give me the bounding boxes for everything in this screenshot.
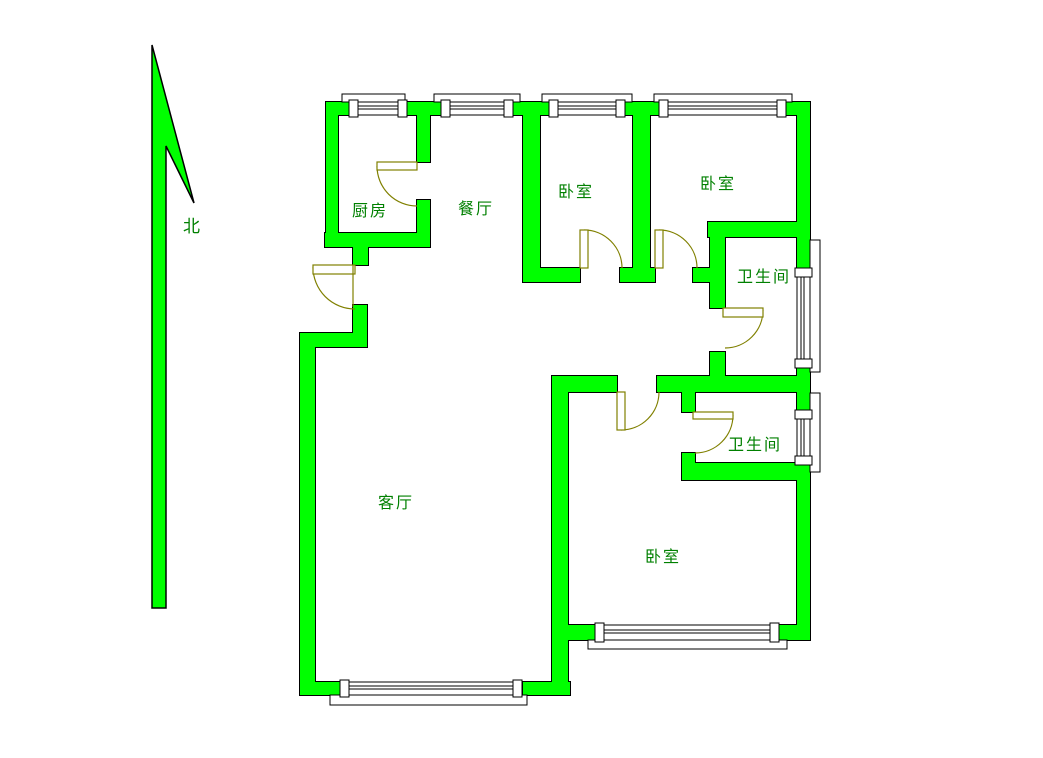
window-frame — [349, 100, 358, 117]
window-frame — [513, 680, 522, 697]
room-label-living-room: 客厅 — [378, 493, 414, 512]
room-label-dining-room: 餐厅 — [458, 199, 494, 218]
room-label-bedroom-south: 卧室 — [645, 547, 681, 566]
floor-plan-page: 北 厨房 餐厅 卧室 卧室 卫生间 卫生间 客厅 卧室 — [0, 0, 1043, 758]
window-frame — [595, 623, 604, 642]
window-frame — [795, 410, 812, 419]
wall — [710, 222, 725, 308]
north-arrow-icon — [152, 45, 194, 608]
window-frame — [659, 100, 668, 117]
window-frame — [398, 100, 407, 117]
room-label-bedroom-north-2: 卧室 — [700, 174, 736, 193]
window-frame — [770, 623, 779, 642]
window-frame — [795, 456, 812, 465]
floor-plan-canvas: 北 厨房 餐厅 卧室 卧室 卫生间 卫生间 客厅 卧室 — [0, 0, 1043, 758]
window-frame — [504, 100, 513, 117]
wall — [300, 333, 315, 695]
wall — [682, 463, 810, 480]
window-frame — [616, 100, 625, 117]
bedroom-2-door-leaf — [655, 230, 663, 268]
kitchen-door-leaf — [377, 162, 417, 170]
window-frame — [549, 100, 558, 117]
wall — [797, 368, 810, 410]
bedroom-3-door-leaf — [617, 392, 625, 430]
room-label-bathroom-south: 卫生间 — [728, 435, 782, 454]
window-frame — [777, 100, 786, 117]
bedroom-1-door-swing-arc — [584, 230, 622, 268]
wall — [353, 247, 368, 265]
bathroom-1-door-leaf — [723, 308, 763, 317]
wall — [326, 102, 338, 247]
window-frame — [795, 268, 812, 277]
bathroom-2-door-leaf — [693, 412, 733, 419]
window-sill — [330, 695, 527, 705]
wall — [417, 200, 430, 240]
bedroom-2-door-swing-arc — [659, 230, 697, 268]
wall — [682, 376, 695, 412]
wall — [633, 102, 650, 282]
wall — [552, 376, 568, 695]
room-label-kitchen: 厨房 — [352, 201, 388, 220]
compass: 北 — [152, 45, 200, 608]
window-sill — [588, 640, 787, 649]
wall — [797, 102, 810, 268]
entry-door-leaf — [313, 265, 355, 274]
wall — [552, 376, 617, 392]
wall — [552, 625, 600, 640]
window-sill — [810, 240, 820, 372]
window-frame — [340, 680, 349, 697]
north-label: 北 — [183, 217, 200, 237]
bedroom-1-door-leaf — [580, 230, 588, 268]
room-label-bathroom-north: 卫生间 — [737, 267, 791, 286]
wall — [523, 102, 540, 282]
wall — [797, 465, 810, 640]
kitchen-door-swing-arc — [377, 166, 417, 206]
wall — [325, 233, 430, 247]
room-label-bedroom-north-1: 卧室 — [558, 182, 594, 201]
bedroom-3-door-swing-arc — [621, 392, 659, 430]
window-frame — [441, 100, 450, 117]
wall — [417, 102, 430, 162]
wall — [657, 376, 810, 392]
window-sill — [654, 94, 792, 102]
window-frame — [795, 359, 812, 368]
